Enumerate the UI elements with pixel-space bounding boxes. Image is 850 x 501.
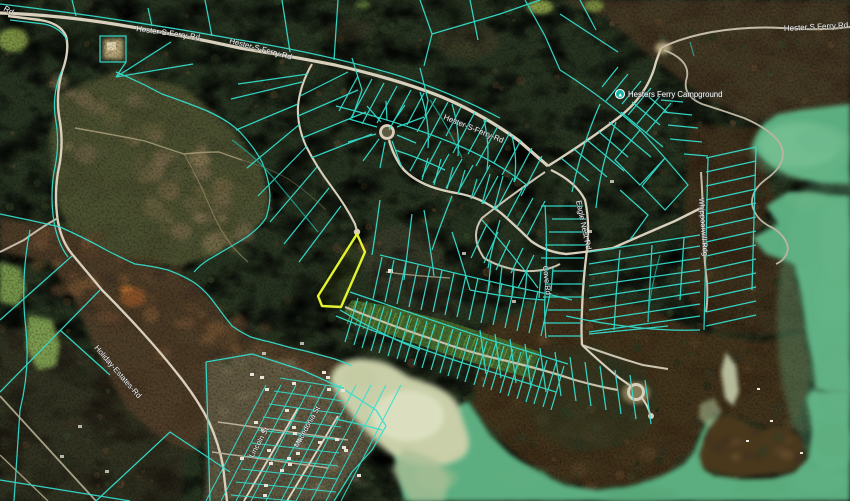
- svg-text:Hesters Ferry Campground: Hesters Ferry Campground: [628, 90, 722, 99]
- svg-text:▲: ▲: [617, 93, 623, 99]
